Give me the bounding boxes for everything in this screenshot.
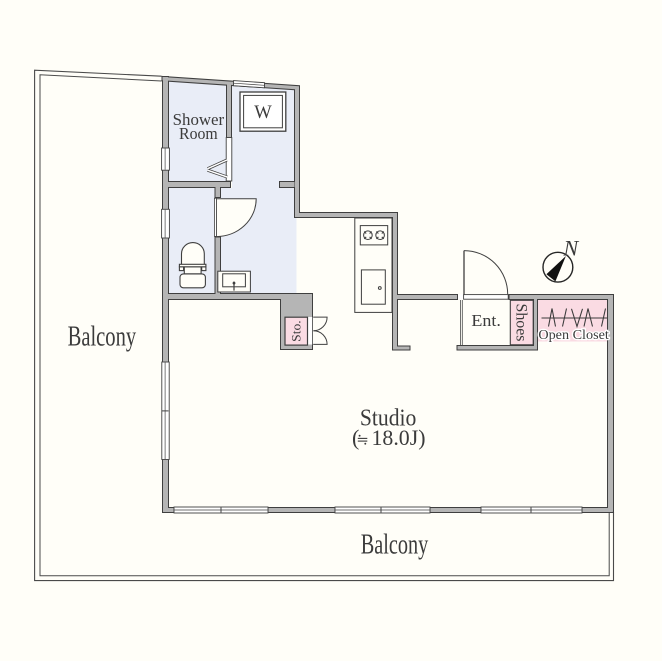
- svg-text:Room: Room: [179, 124, 218, 143]
- svg-text:Ent.: Ent.: [471, 311, 501, 330]
- svg-text:Open Closet: Open Closet: [538, 327, 609, 342]
- svg-text:18.0J): 18.0J): [372, 425, 426, 450]
- svg-text:W: W: [254, 102, 272, 123]
- svg-text:Sto.: Sto.: [289, 320, 303, 342]
- svg-text:Balcony: Balcony: [68, 321, 137, 352]
- svg-text:Balcony: Balcony: [361, 529, 429, 560]
- svg-text:(: (: [352, 425, 359, 450]
- svg-text:N: N: [563, 235, 580, 260]
- svg-text:Shoes: Shoes: [513, 304, 530, 342]
